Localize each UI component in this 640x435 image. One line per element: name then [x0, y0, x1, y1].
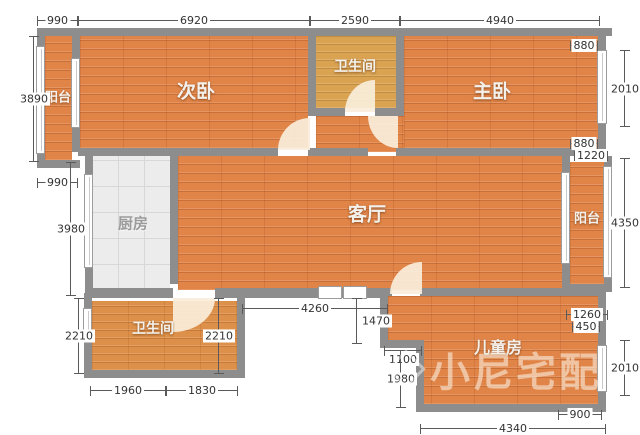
dim-2210-left: 2210: [78, 298, 79, 374]
dim-1830: 1830: [166, 390, 238, 391]
dim-1960: 1960: [90, 390, 166, 391]
wall: [237, 293, 245, 378]
dim-4350: 4350: [624, 158, 625, 288]
wall: [420, 288, 606, 296]
window: [561, 172, 570, 264]
dim-880-mid: 880: [570, 143, 598, 144]
room-label-bathroom-top: 卫生间: [334, 56, 376, 76]
dim-1260: 1260: [566, 314, 608, 315]
dim-1220: 1220: [574, 155, 608, 156]
room-label-kids-room: 儿童房: [474, 334, 522, 358]
dim-990-below: 990: [37, 182, 78, 183]
wall: [308, 108, 345, 116]
room-label-bedroom-second: 次卧: [177, 77, 215, 104]
wall: [396, 36, 404, 116]
dim-880-top: 880: [570, 45, 598, 46]
entry-door-leaf: [318, 286, 342, 299]
dim-4260: 4260: [242, 308, 388, 309]
floor-plan: 阳台 次卧 卫生间 主卧 厨房 客厅 阳台 卫生间 儿童房 990 6920 2…: [0, 0, 640, 435]
dim-1470: 1470: [356, 298, 357, 344]
dim-1980: 1980: [400, 350, 401, 408]
dim-450: 450: [572, 326, 600, 327]
window: [597, 345, 607, 392]
wall: [93, 288, 173, 298]
window: [84, 174, 93, 268]
dim-2590: 2590: [310, 20, 400, 21]
dim-990-top: 990: [37, 20, 78, 21]
window: [597, 50, 607, 124]
dim-3890: 3890: [33, 36, 34, 162]
dim-900: 900: [558, 414, 602, 415]
room-label-bedroom-master: 主卧: [473, 77, 511, 104]
wall: [170, 156, 178, 284]
dim-2010-top: 2010: [624, 50, 625, 127]
room-label-bathroom-bottom: 卫生间: [132, 318, 174, 338]
dim-6920: 6920: [78, 20, 310, 21]
window: [71, 58, 80, 128]
dim-2010-bottom: 2010: [624, 340, 625, 396]
room-label-living-room: 客厅: [348, 200, 386, 227]
wall: [380, 340, 424, 348]
room-label-kitchen: 厨房: [118, 213, 148, 234]
dim-4340: 4340: [420, 428, 606, 429]
wall: [37, 28, 612, 36]
wall: [84, 370, 245, 378]
dim-3980: 3980: [70, 162, 71, 296]
dim-2210-mid: 2210: [218, 298, 219, 374]
dim-4940: 4940: [400, 20, 600, 21]
wall: [308, 148, 368, 156]
room-label-balcony-right: 阳台: [574, 208, 600, 227]
wall: [78, 148, 278, 156]
wall: [308, 36, 316, 116]
